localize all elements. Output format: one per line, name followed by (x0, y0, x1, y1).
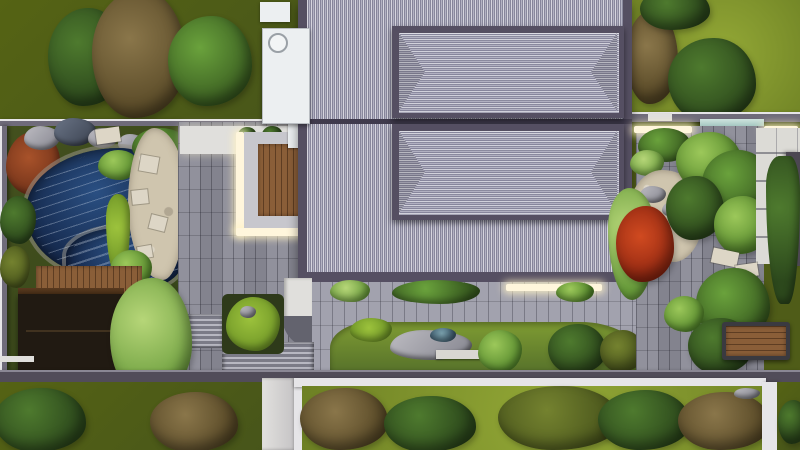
bed-overhang (330, 280, 370, 302)
gate-opening (648, 113, 672, 121)
tree-canopy (678, 392, 770, 450)
garden-bench-wood (726, 326, 786, 356)
hip-roof-a-tiles (399, 33, 619, 113)
ball-tree (548, 324, 606, 374)
red-maple (616, 206, 674, 282)
hip-roof-b-tiles (399, 131, 619, 215)
white-annex-box (260, 2, 290, 22)
hedge-right (766, 156, 800, 304)
lawn-frame-wall-right (762, 382, 777, 450)
pavilion-seam (26, 330, 116, 332)
blue-foliage (430, 328, 456, 342)
stairs-side (188, 314, 224, 348)
white-path-bottom (262, 378, 296, 450)
shrub (0, 246, 30, 288)
bed-overhang (556, 282, 594, 302)
stepping-paver (139, 155, 160, 174)
bed-overhang (392, 280, 480, 304)
tree-canopy (668, 38, 756, 122)
tree-canopy (384, 396, 476, 450)
stepping-paver (131, 189, 148, 205)
shrub (0, 196, 36, 244)
tree-canopy (0, 388, 86, 450)
ball-tree (478, 330, 522, 372)
tree-canopy (150, 392, 238, 450)
moss-mound (226, 297, 280, 351)
tree-canopy (778, 400, 800, 444)
tree-canopy (598, 390, 690, 450)
shrub (664, 296, 704, 332)
moss-mound (350, 318, 392, 342)
landscape-render (0, 0, 800, 450)
deck-light-strip-vertical (236, 132, 244, 234)
annex-round-vent (268, 33, 288, 53)
tree-canopy (168, 16, 252, 106)
curb (0, 356, 34, 362)
tree-canopy (300, 388, 388, 450)
